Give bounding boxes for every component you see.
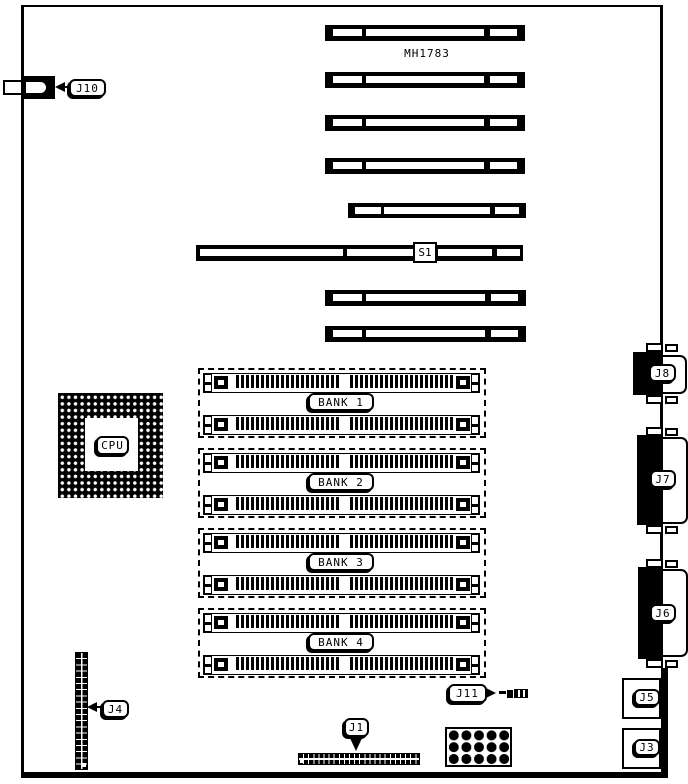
- simm-latch-icon: [214, 376, 228, 389]
- simm-latch-icon: [456, 616, 470, 629]
- memory-bank-1: BANK 1: [198, 368, 486, 438]
- bank-3-label: BANK 3: [308, 553, 374, 571]
- j10-external-stub: [3, 80, 23, 95]
- pin-one-marker: [82, 763, 86, 767]
- slot-opening: [366, 76, 484, 83]
- expansion-slot-2: [325, 72, 525, 88]
- expansion-slot-1: [325, 25, 525, 41]
- simm-end-clip: [471, 454, 479, 472]
- slot-opening: [333, 76, 362, 83]
- bank-1-label: BANK 1: [308, 393, 374, 411]
- slot-opening: [366, 119, 484, 126]
- simm-end-clip: [204, 534, 212, 552]
- simm-latch-icon: [456, 498, 470, 511]
- pointer-arrow-icon: [349, 736, 363, 751]
- simm-latch-icon: [456, 456, 470, 469]
- simm-end-clip: [204, 496, 212, 514]
- motherboard-diagram: S1 MH1783 J10 CPU BANK 1 BANK 2 BANK 3 B…: [0, 0, 688, 784]
- bank-2-label: BANK 2: [308, 473, 374, 491]
- simm-latch-icon: [214, 578, 228, 591]
- simm-end-clip: [471, 576, 479, 594]
- simm-socket: [203, 613, 480, 633]
- simm-end-clip: [204, 576, 212, 594]
- mounting-tab: [665, 396, 678, 404]
- pin-one-marker: [300, 759, 304, 763]
- j1-label: J1: [344, 718, 369, 737]
- slot-opening: [490, 119, 517, 126]
- expansion-slot-8: [325, 326, 526, 342]
- simm-latch-icon: [214, 418, 228, 431]
- j4-label: J4: [102, 700, 129, 718]
- simm-end-clip: [471, 374, 479, 392]
- slot-opening: [366, 162, 484, 169]
- s1-switch-label: S1: [413, 242, 437, 263]
- expansion-slot-3: [325, 115, 525, 131]
- j11-label: J11: [448, 684, 487, 703]
- slot-opening: [384, 207, 489, 214]
- mounting-tab: [646, 659, 663, 668]
- simm-socket: [203, 453, 480, 473]
- simm-end-clip: [471, 614, 479, 632]
- simm-socket: [203, 575, 480, 595]
- slot-opening: [333, 330, 362, 337]
- simm-latch-icon: [456, 658, 470, 671]
- simm-latch-icon: [214, 536, 228, 549]
- mounting-tab: [646, 525, 663, 534]
- simm-latch-icon: [456, 536, 470, 549]
- j10-connector-body: [21, 76, 55, 99]
- slot-opening: [490, 162, 517, 169]
- pointer-arrow-icon: [486, 688, 496, 698]
- board-edge-right-thick: [661, 668, 668, 778]
- slot-opening: [366, 294, 485, 301]
- simm-latch-icon: [214, 658, 228, 671]
- j11-jumper-pin: [507, 690, 513, 698]
- mounting-tab: [665, 344, 678, 352]
- mounting-tab: [646, 343, 663, 352]
- simm-latch-icon: [456, 376, 470, 389]
- expansion-slot-5: [348, 203, 526, 218]
- mounting-tab: [646, 395, 663, 404]
- simm-end-clip: [471, 496, 479, 514]
- slot-opening: [497, 249, 520, 256]
- part-number-text: MH1783: [382, 47, 472, 60]
- memory-bank-3: BANK 3: [198, 528, 486, 598]
- expansion-slot-4: [325, 158, 525, 174]
- simm-socket: [203, 373, 480, 393]
- simm-end-clip: [204, 374, 212, 392]
- simm-socket: [203, 655, 480, 675]
- j10-label: J10: [69, 79, 106, 97]
- simm-end-clip: [204, 454, 212, 472]
- mounting-tab: [665, 526, 678, 534]
- board-edge-top: [22, 5, 661, 7]
- slot-opening: [438, 249, 492, 256]
- simm-latch-icon: [456, 418, 470, 431]
- simm-end-clip: [471, 416, 479, 434]
- bank-4-label: BANK 4: [308, 633, 374, 651]
- j10-port-opening: [26, 80, 48, 95]
- simm-end-clip: [471, 534, 479, 552]
- j8-label: J8: [649, 364, 676, 382]
- simm-socket: [203, 495, 480, 515]
- board-edge-left: [21, 5, 24, 778]
- simm-latch-icon: [456, 578, 470, 591]
- simm-end-clip: [204, 416, 212, 434]
- mounting-tab: [665, 560, 678, 568]
- slot-opening: [333, 162, 362, 169]
- slot-opening: [366, 330, 485, 337]
- slot-opening: [490, 29, 517, 36]
- slot-opening: [491, 294, 518, 301]
- simm-end-clip: [204, 656, 212, 674]
- slot-opening: [491, 330, 518, 337]
- slot-opening: [333, 119, 362, 126]
- slot-opening: [200, 249, 343, 256]
- slot-opening: [333, 29, 362, 36]
- j11-jumper-cap: [514, 689, 528, 698]
- mounting-tab: [665, 660, 678, 668]
- j5-label: J5: [634, 689, 660, 706]
- slot-opening: [495, 207, 519, 214]
- j1-pin-header: [298, 753, 420, 765]
- memory-bank-4: BANK 4: [198, 608, 486, 678]
- memory-bank-2: BANK 2: [198, 448, 486, 518]
- j3-label: J3: [634, 739, 660, 756]
- simm-latch-icon: [214, 616, 228, 629]
- slot-opening: [366, 29, 484, 36]
- slot-opening: [347, 249, 413, 256]
- slot-opening: [333, 294, 362, 301]
- expansion-slot-7: [325, 290, 526, 306]
- j7-label: J7: [650, 470, 676, 488]
- leader-line: [499, 691, 506, 694]
- jumper-pin-block: [445, 727, 512, 767]
- board-edge-bottom: [21, 772, 668, 778]
- simm-end-clip: [204, 614, 212, 632]
- expansion-slot-6: S1: [196, 245, 523, 261]
- j6-label: J6: [650, 604, 676, 622]
- simm-latch-icon: [214, 498, 228, 511]
- mounting-tab: [665, 428, 678, 436]
- simm-socket: [203, 415, 480, 435]
- cpu-label: CPU: [96, 436, 129, 455]
- simm-latch-icon: [214, 456, 228, 469]
- slot-opening: [355, 207, 381, 214]
- simm-socket: [203, 533, 480, 553]
- simm-end-clip: [471, 656, 479, 674]
- slot-opening: [490, 76, 517, 83]
